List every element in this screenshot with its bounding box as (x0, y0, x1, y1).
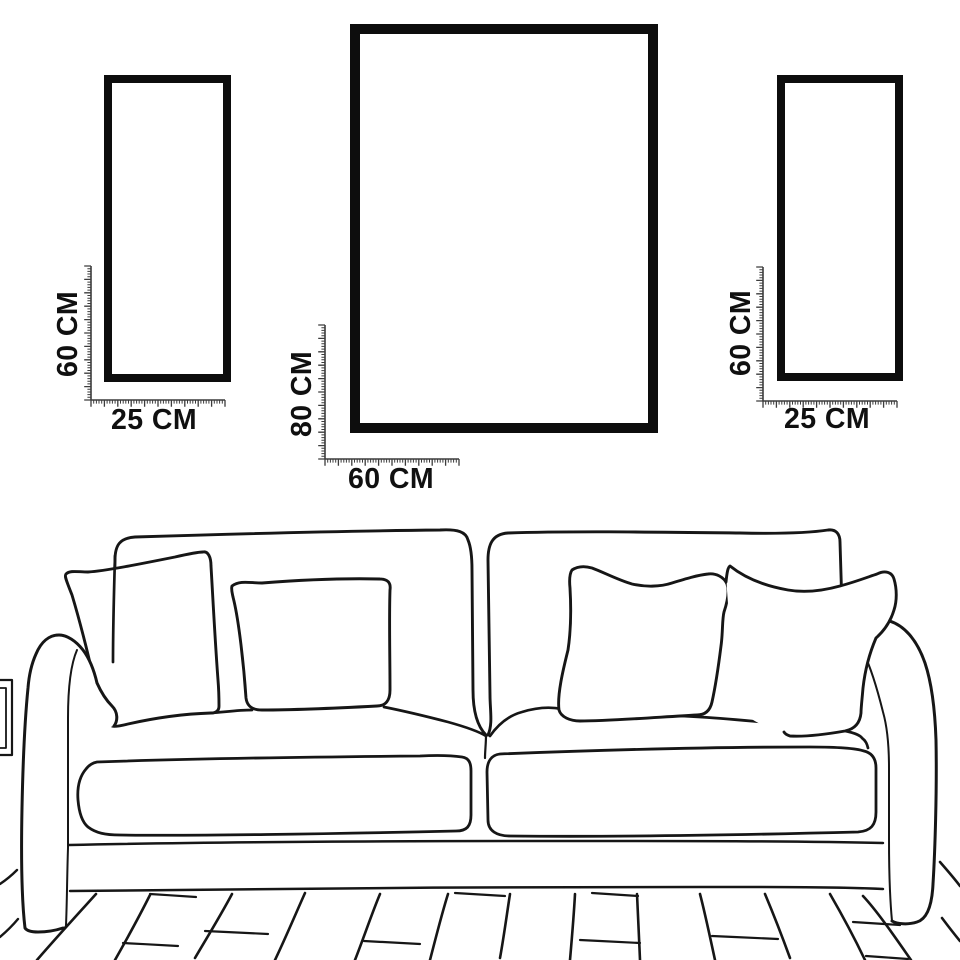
svg-text:80 CM: 80 CM (286, 351, 318, 437)
svg-text:60 CM: 60 CM (725, 290, 757, 376)
svg-text:25 CM: 25 CM (111, 404, 197, 436)
svg-text:60 CM: 60 CM (52, 291, 84, 377)
svg-text:60 CM: 60 CM (348, 463, 434, 495)
svg-text:25 CM: 25 CM (784, 403, 870, 435)
